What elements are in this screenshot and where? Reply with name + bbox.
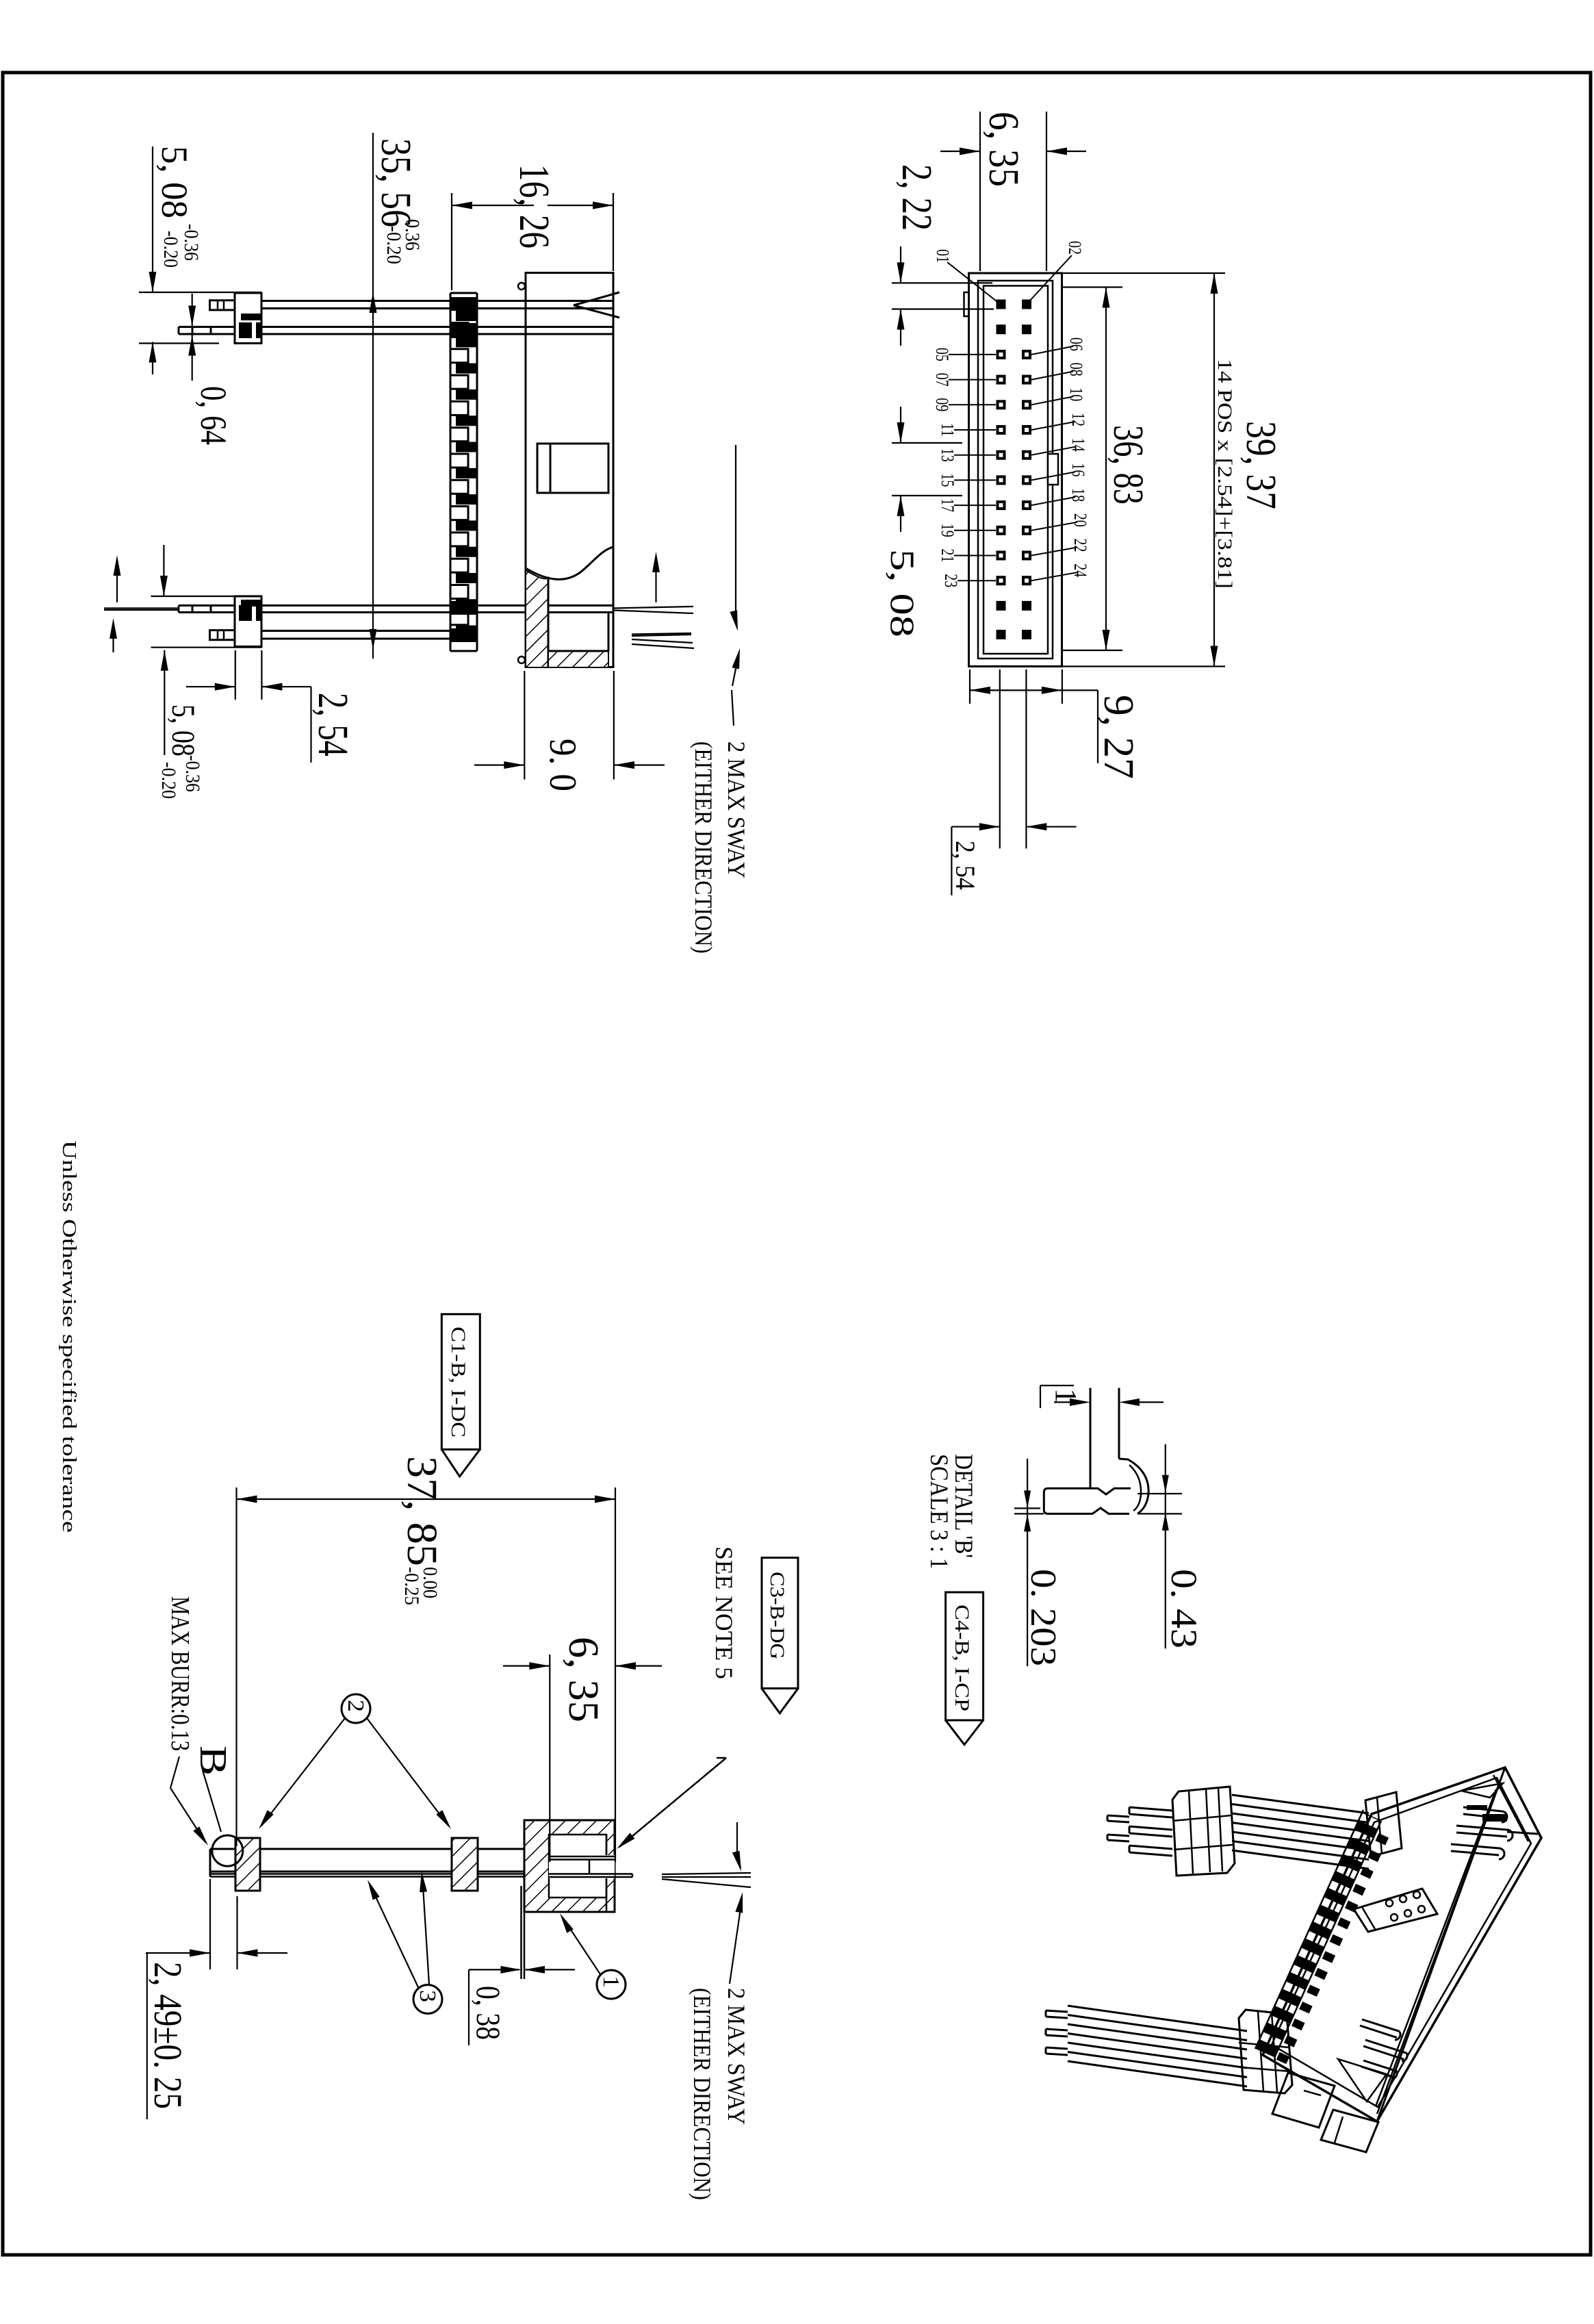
svg-text:-0.20: -0.20: [383, 226, 405, 264]
svg-text:-0.25: -0.25: [400, 1567, 423, 1605]
svg-text:2 MAX SWAY: 2 MAX SWAY: [723, 1988, 750, 2125]
svg-text:10: 10: [1066, 387, 1086, 401]
svg-text:5, 08: 5, 08: [154, 146, 195, 218]
svg-text:35, 56: 35, 56: [372, 138, 419, 227]
svg-text:B: B: [192, 1746, 234, 1776]
svg-text:6, 35: 6, 35: [560, 1637, 606, 1722]
svg-text:16: 16: [1068, 463, 1088, 476]
svg-text:C1-B, I-DC: C1-B, I-DC: [447, 1327, 470, 1438]
svg-text:SEE NOTE 5: SEE NOTE 5: [710, 1546, 738, 1679]
svg-text:02: 02: [1065, 241, 1085, 255]
svg-text:22: 22: [1070, 539, 1090, 552]
svg-text:06: 06: [1066, 337, 1086, 351]
svg-text:20: 20: [1070, 513, 1090, 527]
svg-text:36, 83: 36, 83: [1105, 425, 1151, 505]
svg-text:0, 64: 0, 64: [193, 386, 234, 445]
svg-text:0, 38: 0, 38: [470, 1986, 508, 2040]
svg-text:C4-B, I-CP: C4-B, I-CP: [951, 1605, 973, 1711]
svg-text:6, 35: 6, 35: [980, 112, 1027, 187]
svg-text:0. 203: 0. 203: [1023, 1569, 1063, 1666]
svg-text:5, 08: 5, 08: [884, 549, 922, 637]
svg-text:-0.36: -0.36: [181, 755, 204, 792]
svg-text:Unless Otherwise specified tol: Unless Otherwise specified tolerance: [58, 1140, 79, 1533]
svg-text:24: 24: [1070, 563, 1090, 577]
svg-text:2, 22: 2, 22: [893, 164, 940, 231]
svg-text:37, 85: 37, 85: [398, 1456, 445, 1566]
svg-text:08: 08: [1066, 363, 1086, 376]
svg-text:MAX BURR:0.13: MAX BURR:0.13: [166, 1596, 194, 1751]
svg-text:0. 43: 0. 43: [1164, 1569, 1205, 1648]
svg-text:3: 3: [415, 1990, 440, 2002]
svg-text:16, 26: 16, 26: [511, 164, 557, 248]
svg-text:01: 01: [933, 249, 953, 263]
svg-text:DETAIL 'B': DETAIL 'B': [949, 1454, 977, 1558]
svg-text:39, 37: 39, 37: [1237, 421, 1284, 509]
svg-text:2, 49±0. 25: 2, 49±0. 25: [146, 1962, 190, 2109]
svg-text:9. 0: 9. 0: [541, 739, 584, 791]
svg-text:-0.20: -0.20: [159, 231, 182, 268]
svg-text:14: 14: [1068, 438, 1088, 452]
svg-text:2, 54: 2, 54: [950, 841, 981, 890]
svg-text:SCALE 3 : 1: SCALE 3 : 1: [925, 1454, 953, 1569]
svg-text:2: 2: [343, 1700, 368, 1712]
svg-text:1: 1: [1049, 1388, 1083, 1403]
svg-text:18: 18: [1068, 488, 1088, 502]
svg-text:2 MAX SWAY: 2 MAX SWAY: [723, 741, 750, 878]
svg-text:9, 27: 9, 27: [1095, 695, 1142, 779]
svg-text:14 POS x [2.54]+[3.81]: 14 POS x [2.54]+[3.81]: [1213, 359, 1236, 589]
svg-text:-0.36: -0.36: [180, 224, 203, 261]
svg-text:2, 54: 2, 54: [309, 693, 356, 756]
svg-text:5, 08: 5, 08: [165, 704, 201, 756]
svg-text:C3-B-DG: C3-B-DG: [766, 1572, 788, 1659]
svg-text:1: 1: [598, 1976, 624, 1988]
svg-text:-0.20: -0.20: [157, 762, 180, 799]
svg-text:12: 12: [1068, 413, 1088, 426]
svg-text:(EITHER DIRECTION): (EITHER DIRECTION): [689, 1988, 716, 2200]
svg-text:(EITHER DIRECTION): (EITHER DIRECTION): [690, 741, 717, 954]
